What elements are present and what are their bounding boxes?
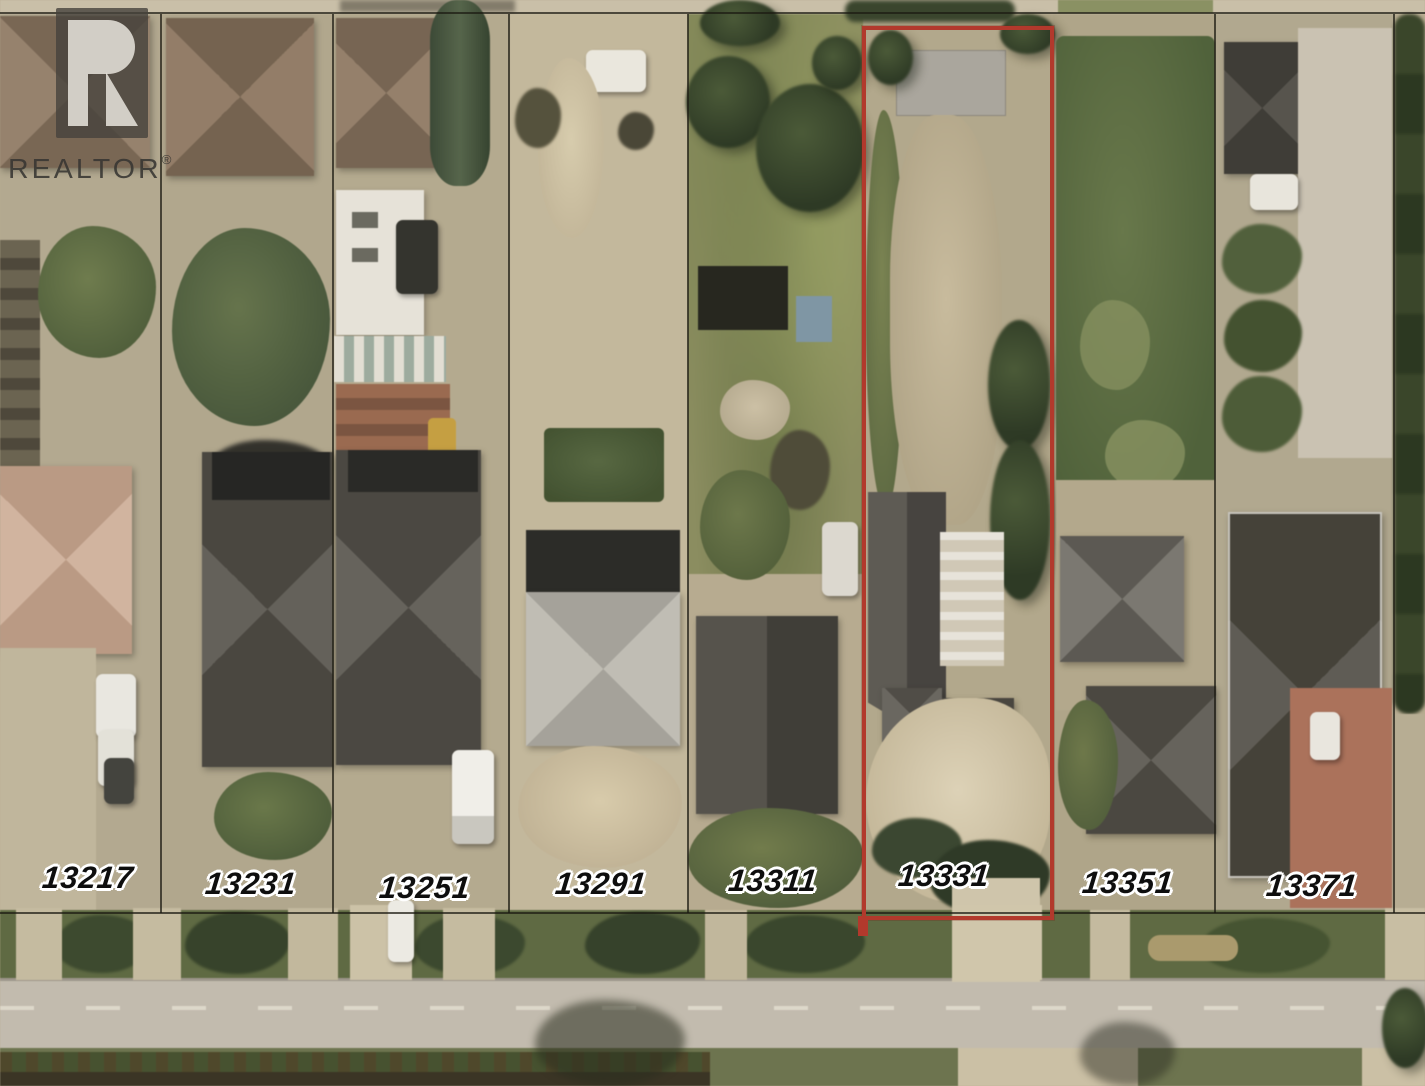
tree: [700, 0, 780, 46]
white-truck: [452, 750, 494, 844]
tree-shadow: [535, 1000, 685, 1086]
roof-dark-section: [212, 452, 330, 500]
roof-dark-section: [348, 450, 478, 492]
realtor-r-glyph: [56, 8, 148, 138]
shed-roof: [698, 266, 788, 330]
lot-number: 13311: [727, 863, 820, 898]
tree-canopy: [845, 0, 1015, 22]
construction-dark-roof: [526, 530, 680, 594]
driveway-apron: [705, 910, 747, 980]
white-car: [1310, 712, 1340, 760]
white-van: [388, 900, 414, 962]
lot-number: 13331: [897, 858, 992, 893]
lot-label-13331: 13331: [896, 858, 991, 894]
house-roof: [1060, 536, 1184, 662]
lot-label-13217: 13217: [40, 860, 135, 896]
bare-dirt-patch: [538, 58, 604, 238]
garden-plot: [172, 228, 330, 426]
lot-number: 13291: [554, 866, 649, 901]
realtor-watermark: REALTOR®: [8, 8, 178, 185]
blue-tarp: [796, 296, 832, 342]
driveway-apron: [1090, 910, 1130, 980]
tree: [756, 84, 864, 212]
lot-label-13291: 13291: [553, 866, 648, 902]
driveway-apron: [443, 908, 495, 980]
white-car: [1250, 174, 1298, 210]
driveway-apron: [288, 908, 338, 980]
roof-vent: [352, 212, 378, 228]
realtor-wordmark: REALTOR®: [8, 152, 181, 185]
boundary-line-top: [0, 12, 1425, 14]
lot-number: 13351: [1081, 865, 1176, 900]
white-car: [96, 674, 136, 738]
greenhouse: [334, 336, 446, 382]
dirt-piles: [518, 746, 682, 868]
lot-label-13371: 13371: [1264, 868, 1359, 904]
verge-log-pile: [1148, 935, 1238, 961]
boundary-line: [1214, 14, 1216, 913]
registered-trademark-symbol: ®: [162, 152, 175, 167]
realtor-logo-icon: [56, 8, 148, 138]
house-roof: [336, 18, 436, 168]
yard-clutter: [720, 380, 790, 440]
highlighted-parcel-outline-stub: [858, 916, 868, 936]
alley-shadow: [340, 0, 515, 12]
garage-roof: [1224, 42, 1300, 174]
lot-number: 13231: [204, 866, 299, 901]
house-roof: [166, 18, 314, 176]
long-driveway: [1298, 28, 1392, 458]
lot-label-13251: 13251: [377, 870, 472, 906]
driveway-apron: [133, 908, 181, 980]
dark-car: [104, 758, 134, 804]
driveway-apron: [16, 908, 62, 980]
aerial-photo-layer: [0, 0, 1425, 1086]
quonset-greenhouse: [430, 0, 490, 186]
side-yard-clutter: [0, 240, 40, 485]
lot-label-13311: 13311: [727, 863, 820, 899]
right-verge-trees: [1394, 14, 1425, 714]
tree-shadow: [1080, 1022, 1175, 1086]
front-lawn: [214, 772, 332, 860]
road-center-dashes: [0, 1006, 1425, 1010]
lot-number: 13217: [41, 860, 136, 895]
driveway-apron: [1385, 908, 1425, 980]
house-roof: [0, 466, 132, 654]
house-roof: [336, 450, 481, 765]
old-house-roof: [696, 616, 838, 814]
dark-car: [396, 220, 438, 294]
lot-label-13351: 13351: [1080, 865, 1175, 901]
lot-number: 13371: [1265, 868, 1360, 903]
lawn-light-patch: [1080, 300, 1150, 390]
lot-number: 13251: [378, 870, 473, 905]
road: [0, 978, 1425, 1048]
boundary-line: [332, 14, 334, 913]
roof-vent: [352, 248, 378, 262]
tree: [812, 36, 862, 90]
conifer-tree: [1382, 988, 1425, 1068]
boundary-line: [1393, 14, 1395, 913]
garden-plot: [38, 226, 156, 358]
boundary-line: [687, 14, 689, 913]
lot-label-13231: 13231: [203, 866, 298, 902]
right-verge-dirt: [1395, 714, 1425, 914]
construction-new-roof: [526, 592, 680, 746]
front-lawn: [1058, 700, 1118, 830]
white-car: [822, 522, 858, 596]
aerial-map: 13217 13231 13251 13291 13311 13331 1335…: [0, 0, 1425, 1086]
garden-plot: [544, 428, 664, 502]
boundary-line-front: [0, 912, 1425, 914]
boundary-line: [508, 14, 510, 913]
highlighted-parcel-outline: [862, 26, 1054, 920]
realtor-brand-text: REALTOR: [8, 153, 162, 184]
weed-patch: [700, 470, 790, 580]
